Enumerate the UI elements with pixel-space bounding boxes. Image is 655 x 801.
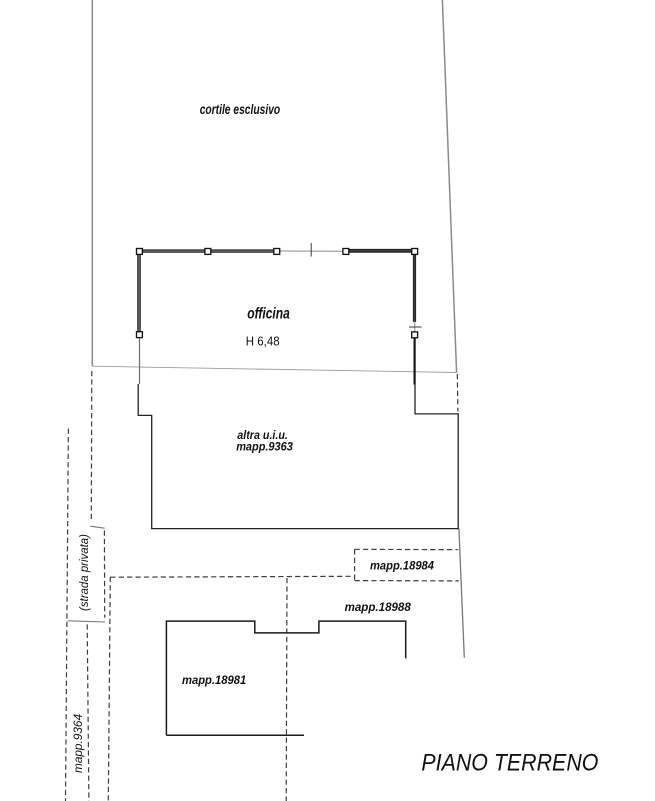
svg-text:PIANO TERRENO: PIANO TERRENO [421, 750, 598, 777]
svg-text:mapp.9363: mapp.9363 [236, 440, 293, 454]
svg-text:mapp.18988: mapp.18988 [345, 600, 412, 614]
svg-text:mapp.9364: mapp.9364 [73, 714, 85, 773]
svg-text:officina: officina [247, 306, 290, 323]
svg-text:H 6,48: H 6,48 [246, 334, 280, 348]
svg-text:cortile esclusivo: cortile esclusivo [200, 101, 281, 117]
svg-text:mapp.18981: mapp.18981 [182, 673, 246, 687]
svg-text:mapp.18984: mapp.18984 [370, 559, 434, 573]
svg-text:(strada privata): (strada privata) [79, 534, 91, 611]
